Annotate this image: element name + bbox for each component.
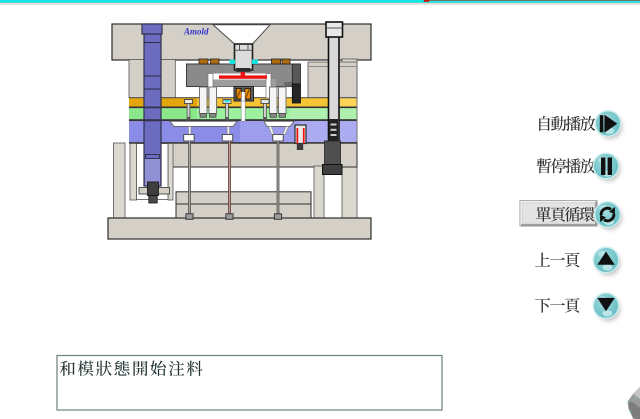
svg-text:Amold: Amold xyxy=(183,27,209,37)
